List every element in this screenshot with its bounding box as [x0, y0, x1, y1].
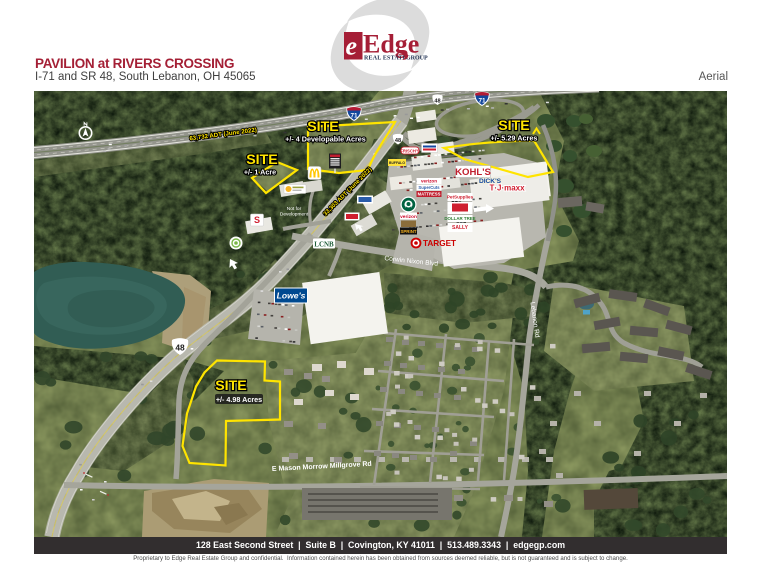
svg-text:verizon: verizon	[421, 178, 437, 183]
svg-text:SITE: SITE	[498, 118, 530, 134]
svg-text:T·J·maxx: T·J·maxx	[489, 183, 525, 192]
svg-text:S: S	[254, 215, 260, 225]
svg-text:SuperCuts: SuperCuts	[418, 185, 440, 190]
svg-text:e: e	[346, 32, 358, 61]
svg-text:SALLY: SALLY	[452, 225, 469, 231]
svg-text:FRISCH'S: FRISCH'S	[400, 148, 420, 153]
svg-text:+/- 4.98 Acres: +/- 4.98 Acres	[216, 395, 262, 404]
svg-text:PetSupplies: PetSupplies	[447, 195, 474, 200]
svg-text:48: 48	[434, 99, 440, 105]
svg-text:SITE: SITE	[307, 119, 339, 135]
svg-text:DOLLAR TREE: DOLLAR TREE	[444, 216, 475, 221]
svg-text:LCNB: LCNB	[314, 240, 334, 248]
svg-text:+/- 5.29 Acres: +/- 5.29 Acres	[491, 134, 538, 143]
svg-text:SITE: SITE	[215, 378, 247, 394]
svg-text:71: 71	[478, 98, 486, 105]
svg-text:+/- 1 Acre: +/- 1 Acre	[244, 168, 276, 177]
svg-text:SPRINT: SPRINT	[400, 229, 416, 234]
svg-text:Not for: Not for	[287, 206, 302, 212]
svg-text:Development: Development	[280, 212, 309, 218]
svg-text:BUFFALO: BUFFALO	[389, 161, 405, 165]
svg-text:Lowe's: Lowe's	[277, 291, 306, 301]
svg-text:GROUP: GROUP	[406, 56, 428, 62]
svg-text:verizon: verizon	[400, 214, 417, 220]
svg-text:KOHL'S: KOHL'S	[455, 167, 491, 178]
svg-text:Edge: Edge	[363, 30, 419, 59]
svg-text:TARGET: TARGET	[423, 239, 456, 248]
svg-text:48: 48	[175, 343, 185, 353]
svg-text:REAL ESTATE: REAL ESTATE	[364, 56, 407, 62]
svg-text:+/- 4 Developable Acres: +/- 4 Developable Acres	[285, 135, 366, 144]
svg-text:71: 71	[350, 113, 358, 120]
svg-text:SITE: SITE	[246, 152, 278, 168]
svg-text:MATTRESS: MATTRESS	[418, 192, 441, 197]
svg-text:48: 48	[395, 138, 401, 144]
